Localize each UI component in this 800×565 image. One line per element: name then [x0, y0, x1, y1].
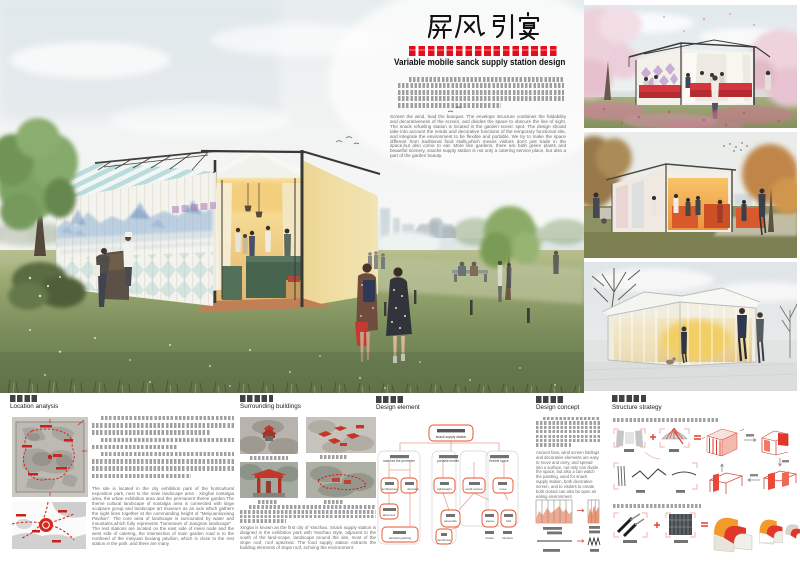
svg-text:snack supply station: snack supply station — [436, 435, 467, 439]
svg-text:move: move — [499, 487, 507, 491]
svg-text:membrane: membrane — [437, 538, 452, 542]
svg-text:fold: fold — [506, 519, 511, 523]
svg-text:portable mobile: portable mobile — [437, 459, 459, 463]
svg-text:furniture: furniture — [502, 536, 513, 540]
svg-text:architecture: architecture — [382, 487, 398, 491]
svg-text:small volume: small volume — [465, 487, 483, 491]
svg-text:lightweight: lightweight — [437, 487, 451, 491]
svg-text:matches the perimeter: matches the perimeter — [383, 459, 416, 463]
svg-text:assemble: assemble — [444, 519, 457, 523]
svg-text:decorate: decorate — [407, 487, 419, 491]
svg-text:trestle: trestle — [485, 536, 494, 540]
svg-text:flexible space: flexible space — [489, 459, 509, 463]
svg-text:abat-vent: abat-vent — [383, 513, 396, 517]
svg-text:sleeve: sleeve — [486, 519, 495, 523]
svg-text:abstract-painting: abstract-painting — [389, 536, 412, 540]
